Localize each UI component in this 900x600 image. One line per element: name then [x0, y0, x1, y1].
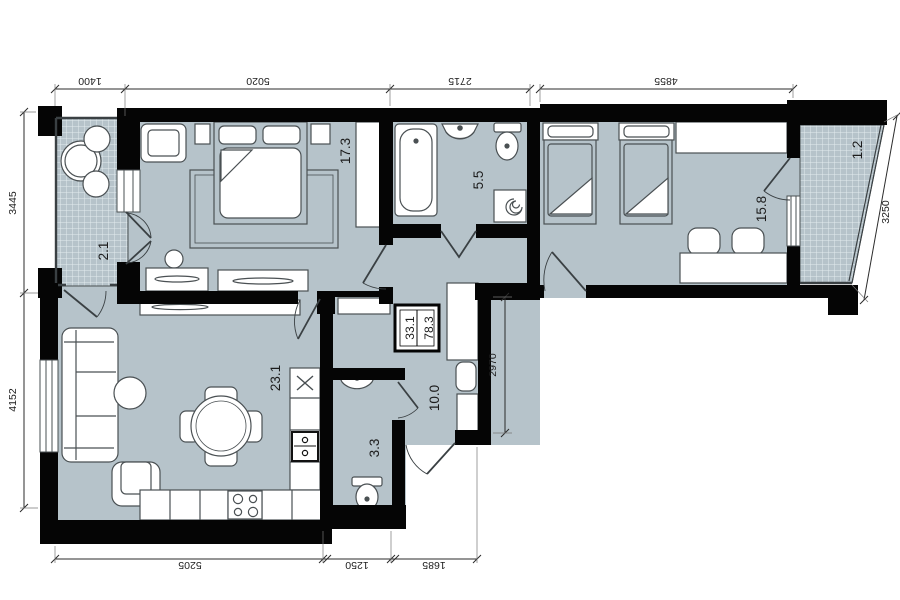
dim-top-bathroom: 2715	[448, 75, 472, 87]
balcony-stool	[84, 126, 110, 152]
wall-balcony-top	[787, 100, 887, 125]
coffee-table	[114, 377, 146, 409]
tv-stand	[218, 270, 308, 291]
hall-wardrobe	[447, 283, 478, 360]
toilet-tank	[494, 123, 521, 132]
dim-top-balcony: 1400	[78, 75, 102, 87]
label-bathroom: 5.5	[471, 171, 486, 190]
dim-hall-depth: 2970	[487, 353, 499, 377]
label-balcony-right: 1.2	[850, 141, 865, 160]
wardrobe-second	[676, 122, 787, 153]
window-living	[40, 360, 58, 452]
wall-bathroom-bottom	[379, 224, 441, 238]
wall-hall-bottom	[455, 430, 491, 445]
wall-bedroom2-bottom	[586, 285, 845, 298]
balcony-stool	[83, 171, 109, 197]
label-balcony-left: 2.1	[96, 242, 111, 261]
wall-top-left	[128, 108, 540, 122]
stool	[165, 250, 183, 268]
dim-bottom-wc: 1250	[345, 559, 369, 571]
sofa	[62, 328, 118, 462]
pillow	[624, 126, 669, 137]
wall-bedroom-living	[128, 291, 298, 304]
label-bedroom-second: 15.8	[754, 196, 769, 222]
toilet-dot	[505, 144, 509, 148]
nightstand	[195, 124, 210, 144]
desk-chair	[732, 228, 764, 255]
pillow	[548, 126, 593, 137]
dim-top-bedroom2: 4855	[654, 75, 678, 87]
wall-top-right	[540, 104, 800, 122]
pillow	[219, 126, 256, 144]
door-arc	[406, 445, 427, 474]
wall-bedroom-balcony	[117, 108, 140, 170]
armchair-seat	[148, 130, 179, 156]
label-bedroom-main: 17.3	[338, 138, 353, 164]
drain	[414, 139, 418, 143]
area-summary-box: 33.1 78.3	[395, 305, 439, 351]
wall-wc-top	[332, 368, 405, 380]
pillow	[263, 126, 300, 144]
faucet	[458, 126, 462, 130]
door-entrance	[427, 443, 455, 474]
wardrobe	[356, 122, 382, 227]
wall-bedroom2-left	[527, 108, 540, 298]
dim-top-bedroom: 5020	[246, 75, 270, 87]
wall-block	[38, 106, 62, 136]
label-wc: 3.3	[367, 439, 382, 458]
floor-plan-svg: 1400 5020 2715 4855 5205 1250 1685 3445 …	[0, 0, 900, 600]
dim-bottom-hall: 1685	[422, 559, 446, 571]
wall-block	[828, 285, 858, 315]
armchair-living-seat	[121, 462, 151, 494]
label-living-kitchen: 23.1	[268, 365, 283, 391]
dim-left-lower: 4152	[7, 388, 19, 412]
faucet	[302, 437, 307, 442]
hall-mirror	[456, 362, 476, 391]
dim-left-upper: 3445	[7, 191, 19, 215]
summary-total-area: 78.3	[422, 316, 436, 340]
nightstand	[311, 124, 330, 144]
summary-living-area: 33.1	[403, 316, 417, 340]
wall-post	[379, 287, 393, 304]
wall-living-wc	[320, 307, 333, 520]
floor-plan-page: 1400 5020 2715 4855 5205 1250 1685 3445 …	[0, 0, 900, 600]
wall-post	[317, 291, 335, 314]
bathtub	[395, 124, 437, 216]
desk-chair	[688, 228, 720, 255]
toilet-dot	[365, 497, 369, 501]
witness-left	[20, 112, 38, 508]
wall-living-left	[40, 283, 58, 363]
hall-cabinet	[457, 394, 478, 432]
window-bedroom2-balcony	[787, 196, 800, 246]
wall-wc-right	[392, 420, 405, 505]
desk	[680, 253, 787, 283]
wall-bedroom2-right	[787, 246, 800, 285]
wall-living-bottom	[40, 520, 332, 544]
dining-table	[191, 396, 251, 456]
window-bedroom-balcony	[117, 170, 140, 212]
label-hallway: 10.0	[427, 385, 442, 411]
dim-bottom-living: 5205	[178, 559, 202, 571]
wall-bedroom2-right	[787, 108, 800, 158]
faucet	[302, 450, 307, 455]
dim-right-balcony: 3250	[880, 200, 892, 224]
